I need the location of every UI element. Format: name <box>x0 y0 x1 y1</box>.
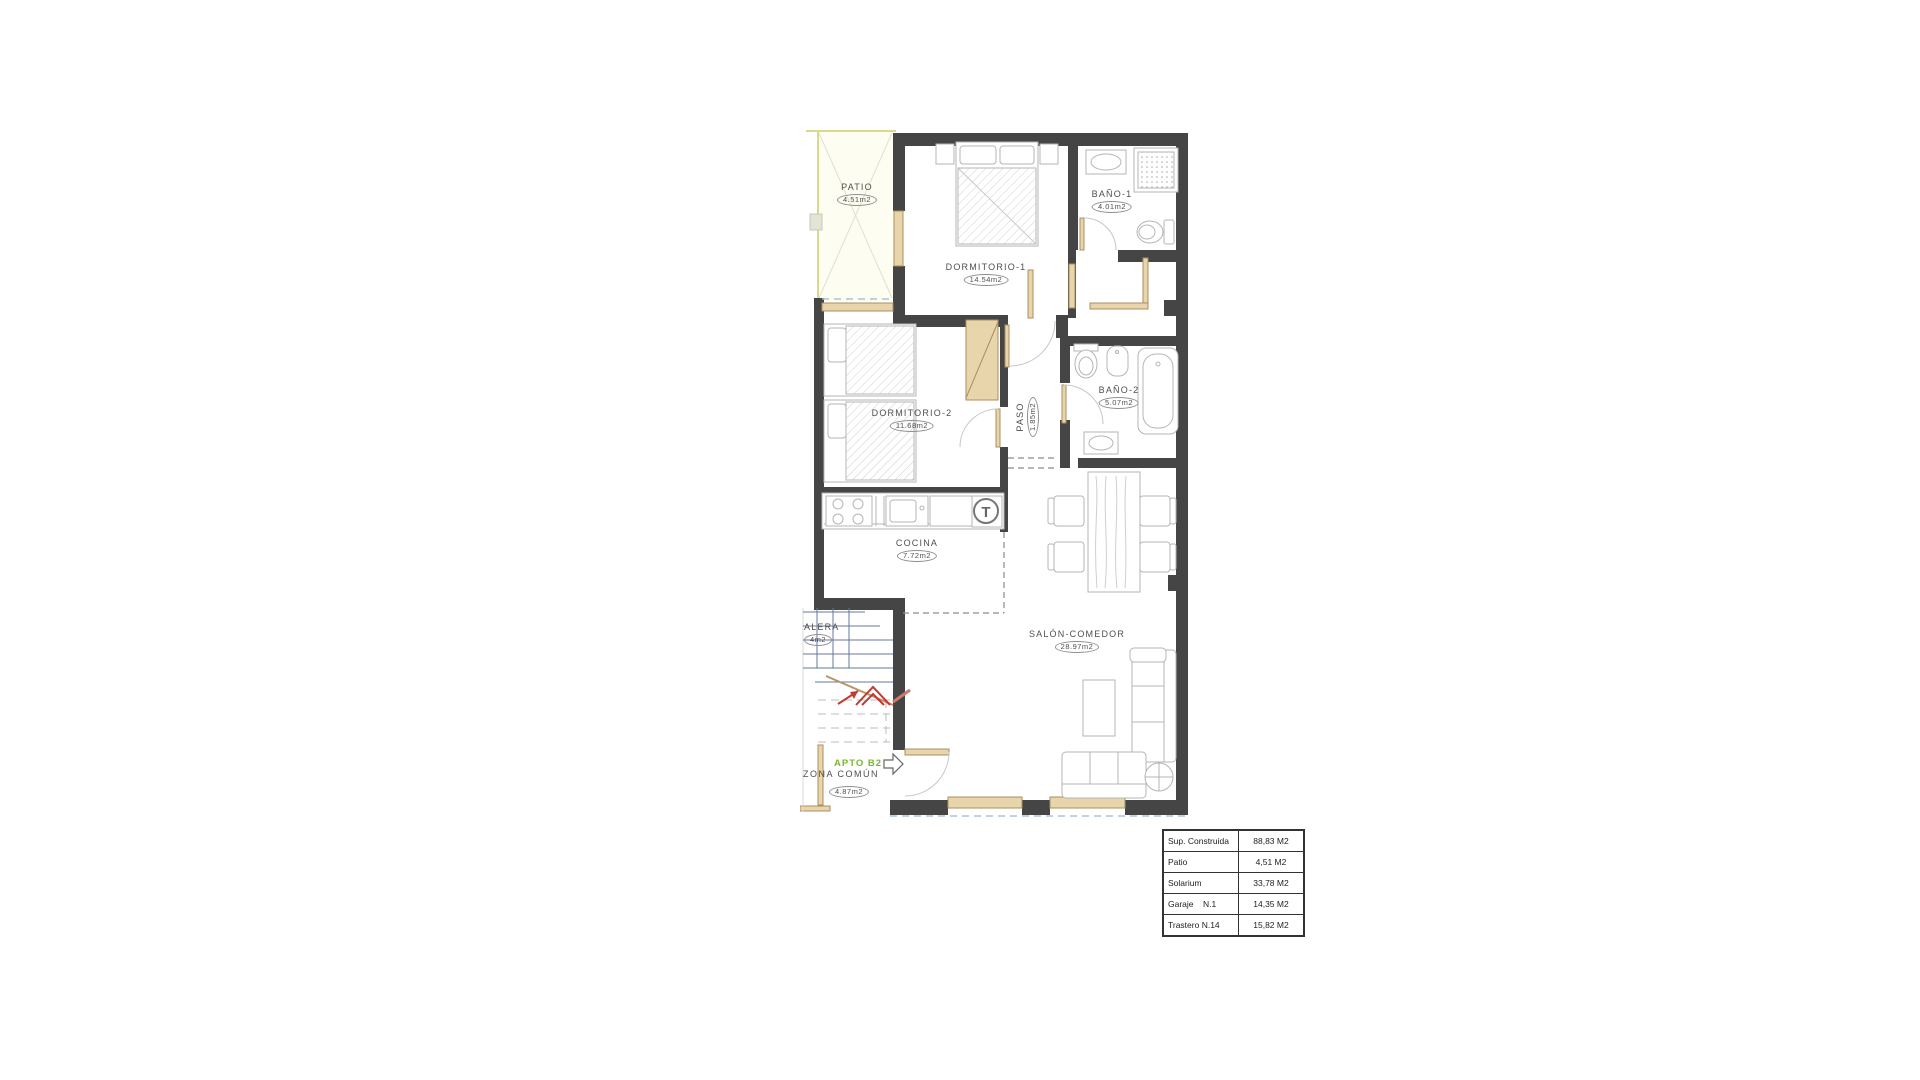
window-facade-right <box>1050 797 1125 808</box>
open-boundaries <box>903 458 1058 613</box>
duvet <box>846 326 914 394</box>
pillow <box>828 404 846 438</box>
row-value: 15,82 M2 <box>1239 915 1305 937</box>
room-area-badge: 4m2 <box>804 634 832 646</box>
window-facade-left <box>948 797 1022 808</box>
room-name: BAÑO-1 <box>1092 189 1133 200</box>
coffee-table <box>1083 680 1115 736</box>
room-name: COCINA <box>896 538 938 549</box>
water-heater-label: T <box>981 504 990 521</box>
room-name: BAÑO-2 <box>1099 385 1140 396</box>
patio-pillar <box>810 214 822 230</box>
room-label-dormitorio2: DORMITORIO-2 11.68m2 <box>872 408 953 432</box>
room-area-badge: 28.97m2 <box>1055 641 1100 653</box>
apartment-entry-arrow-icon <box>884 754 903 774</box>
room-name: DORMITORIO-2 <box>872 408 953 419</box>
door-leaf-paso <box>1005 325 1009 367</box>
room-label-cocina: COCINA 7.72m2 <box>896 538 938 562</box>
row-value: 4,51 M2 <box>1239 852 1305 873</box>
window-patio-dorm2 <box>822 303 893 311</box>
room-name: PASO <box>1015 397 1026 437</box>
patio-area <box>806 131 896 301</box>
chair <box>1140 542 1170 572</box>
room-area-badge: 11.68m2 <box>890 420 934 432</box>
window-patio-dorm1 <box>894 211 903 266</box>
room-label-escalera-partial: ALERA 4m2 <box>804 622 840 646</box>
door-leaf-bano1 <box>1080 218 1084 250</box>
room-area-badge: 5.07m2 <box>1099 397 1139 409</box>
room-name: ALERA <box>804 622 840 633</box>
room-area-badge: 4.87m2 <box>829 786 869 798</box>
window-gallery <box>1069 264 1075 308</box>
room-name: DORMITORIO-1 <box>946 262 1027 273</box>
room-area-badge: 4.01m2 <box>1092 201 1132 213</box>
table-row: Sup. Construida 88,83 M2 <box>1163 830 1304 852</box>
room-area-badge: 7.72m2 <box>897 550 937 562</box>
room-area-badge: 1.85m2 <box>1027 397 1039 437</box>
area-summary-table: Sup. Construida 88,83 M2 Patio 4,51 M2 S… <box>1162 829 1305 937</box>
room-name: SALÓN-COMEDOR <box>1029 629 1125 640</box>
door-leaf-dorm1 <box>1028 270 1033 318</box>
page-canvas: { "plan": { "apartment_tag": { "label": … <box>0 0 1920 1080</box>
nightstand <box>1040 144 1058 164</box>
table-row: Solarium 33,78 M2 <box>1163 873 1304 894</box>
pillow <box>960 146 996 164</box>
sofa-armrest <box>1130 648 1166 662</box>
pillow <box>828 328 846 362</box>
chair <box>1054 496 1084 526</box>
row-label: Trastero N.14 <box>1163 915 1239 937</box>
bedroom1-furniture <box>936 142 1058 246</box>
gallery-glazing-v <box>1143 258 1148 308</box>
room-label-salon: SALÓN-COMEDOR 28.97m2 <box>1029 629 1125 653</box>
chair <box>1054 542 1084 572</box>
row-label: Patio <box>1163 852 1239 873</box>
table-row: Patio 4,51 M2 <box>1163 852 1304 873</box>
room-area-badge: 14.54m2 <box>964 274 1009 286</box>
row-label: Garaje N.1 <box>1163 894 1239 915</box>
row-value: 88,83 M2 <box>1239 830 1305 852</box>
table-row: Garaje N.1 14,35 M2 <box>1163 894 1304 915</box>
sofa-horizontal <box>1062 752 1146 798</box>
row-value: 14,35 M2 <box>1239 894 1305 915</box>
hob <box>826 496 872 526</box>
apartment-tag: APTO B2 <box>834 758 882 769</box>
room-label-zona-comun: ZONA COMÚN <box>803 769 879 779</box>
door-leaf-entrance <box>905 749 949 755</box>
room-label-dormitorio1: DORMITORIO-1 14.54m2 <box>946 262 1027 286</box>
room-label-paso: PASO 1.85m2 <box>1015 397 1039 437</box>
pillow <box>1000 146 1034 164</box>
table-row: Trastero N.14 15,82 M2 <box>1163 915 1304 937</box>
room-label-bano1: BAÑO-1 4.01m2 <box>1092 189 1133 213</box>
door-leaf-dorm2 <box>996 409 1000 447</box>
bedroom2-furniture <box>824 324 916 482</box>
kitchen-fixtures <box>822 493 1004 529</box>
stair-steps-dashed <box>818 700 890 742</box>
zona-comun-area: 4.87m2 <box>829 781 869 799</box>
sofa-vertical <box>1132 650 1176 762</box>
room-label-patio: PATIO 4.51m2 <box>837 182 877 206</box>
appliance <box>930 496 972 526</box>
door-leaf-bano2 <box>1062 385 1066 423</box>
chair <box>1140 496 1170 526</box>
floor-plan-drawing: T <box>800 123 1198 823</box>
room-name: PATIO <box>837 182 877 193</box>
room-area-badge: 4.51m2 <box>837 194 877 206</box>
row-value: 33,78 M2 <box>1239 873 1305 894</box>
room-label-bano2: BAÑO-2 5.07m2 <box>1099 385 1140 409</box>
threshold-zona-comun <box>800 806 830 811</box>
row-label: Sup. Construida <box>1163 830 1239 852</box>
stair-direction-arrows-icon <box>838 687 890 705</box>
gallery-glazing-h <box>1090 303 1148 309</box>
nightstand <box>936 144 954 164</box>
row-label: Solarium <box>1163 873 1239 894</box>
